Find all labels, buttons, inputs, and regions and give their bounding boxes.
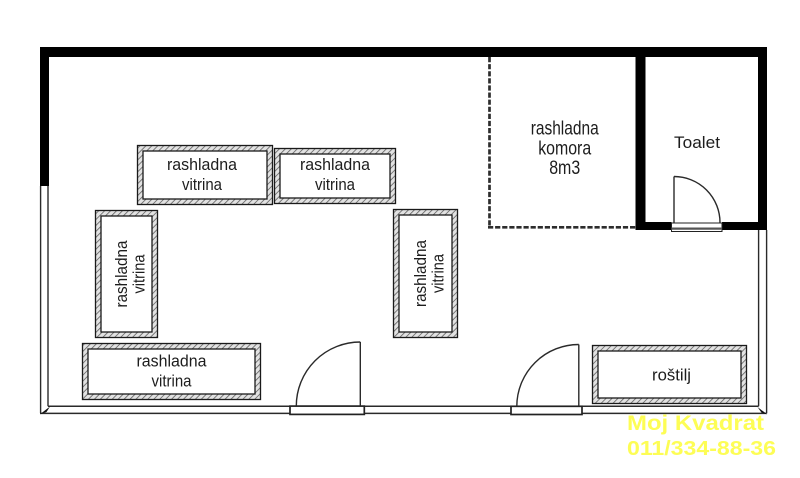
svg-text:vitrina: vitrina (182, 176, 223, 194)
svg-text:rashladna: rashladna (300, 156, 371, 174)
svg-text:vitrina: vitrina (315, 176, 356, 194)
svg-text:rashladna: rashladna (412, 239, 430, 307)
svg-text:rashladna: rashladna (167, 156, 238, 174)
svg-text:Moj Kvadrat: Moj Kvadrat (627, 412, 764, 435)
svg-text:vitrina: vitrina (131, 254, 149, 294)
svg-text:vitrina: vitrina (430, 253, 448, 293)
svg-text:rashladna: rashladna (113, 240, 131, 308)
svg-text:vitrina: vitrina (152, 373, 193, 391)
svg-text:8m3: 8m3 (549, 157, 580, 179)
svg-text:rashladna: rashladna (137, 353, 208, 371)
svg-text:roštilj: roštilj (652, 366, 691, 385)
svg-text:Toalet: Toalet (674, 133, 720, 152)
svg-text:rashladna: rashladna (531, 118, 599, 140)
svg-text:011/334-88-36: 011/334-88-36 (627, 438, 776, 460)
